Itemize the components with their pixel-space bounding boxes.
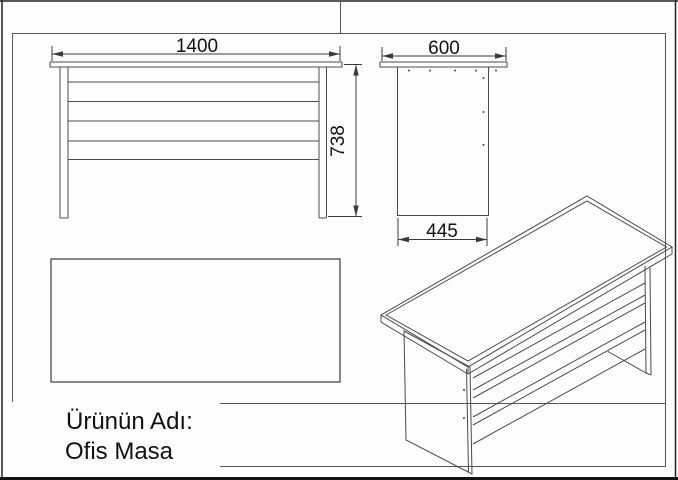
- front-view: [50, 62, 342, 218]
- dimension-front-width: 1400: [52, 36, 340, 61]
- side-view: [380, 62, 507, 216]
- isometric-view: [381, 196, 672, 474]
- title-block: Ürünün Adı: Ofis Masa: [65, 408, 193, 465]
- dimension-side-depth: 600: [382, 38, 506, 61]
- product-name-value: Ofis Masa: [65, 438, 174, 465]
- side-tabletop: [380, 62, 507, 67]
- technical-drawing-canvas: 1400 738 600: [0, 0, 678, 480]
- dim-label-738: 738: [328, 125, 349, 157]
- dim-label-600: 600: [428, 38, 460, 59]
- front-tabletop: [50, 62, 342, 67]
- top-view-outline: [51, 259, 340, 382]
- product-name-label: Ürünün Adı:: [66, 408, 193, 435]
- iso-tabletop-face: [381, 196, 672, 367]
- iso-left-panel: [404, 331, 472, 474]
- dim-label-1400: 1400: [176, 36, 218, 57]
- dimension-side-bottom: 445: [398, 218, 487, 246]
- dim-label-445: 445: [426, 221, 458, 242]
- dimension-front-height: 738: [328, 65, 362, 217]
- drawing-sheet: 1400 738 600: [0, 0, 678, 480]
- top-view: [51, 259, 340, 382]
